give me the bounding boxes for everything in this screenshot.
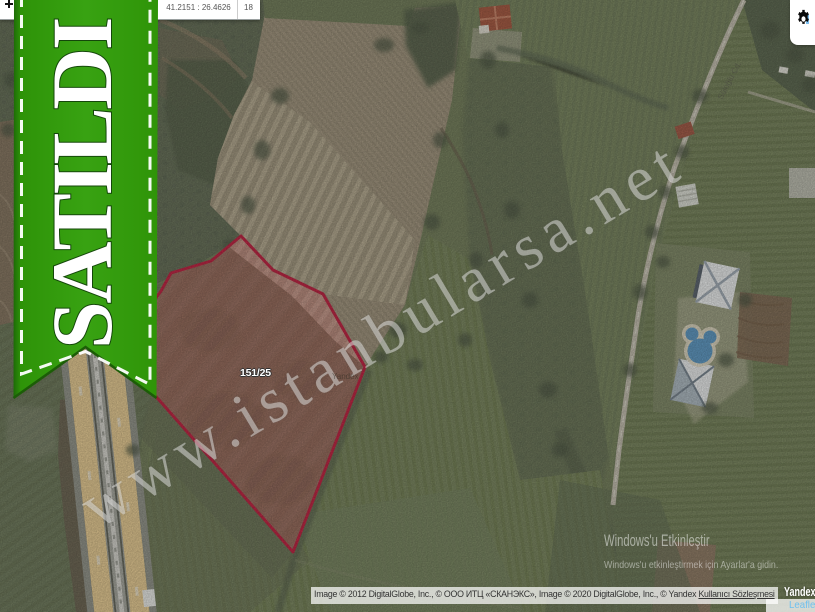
svg-text:SATILDI: SATILDI xyxy=(34,19,130,349)
